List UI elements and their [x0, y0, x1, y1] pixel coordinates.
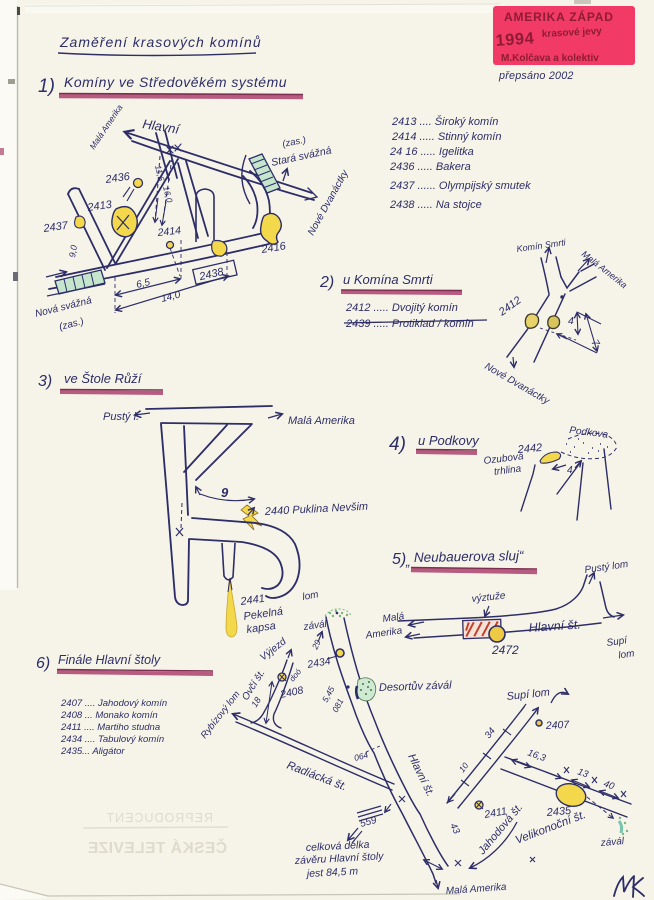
- svg-text:Hlavní št.: Hlavní št.: [528, 617, 581, 635]
- svg-text:2413: 2413: [86, 199, 114, 215]
- svg-text:Neubauerova sluj“: Neubauerova sluj“: [414, 548, 525, 565]
- svg-text:M.Kolčava a kolektiv: M.Kolčava a kolektiv: [501, 53, 599, 64]
- svg-text:4: 4: [568, 315, 574, 327]
- svg-text:Pustý lom: Pustý lom: [584, 559, 629, 576]
- svg-text:Malá Amerika: Malá Amerika: [580, 249, 629, 291]
- svg-text:43: 43: [447, 821, 462, 836]
- svg-text:2407 .... Jahodový komín: 2407 .... Jahodový komín: [60, 698, 167, 709]
- svg-text:jest 84,5 m: jest 84,5 m: [305, 865, 359, 880]
- svg-text:Stará svážná: Stará svážná: [270, 144, 333, 169]
- svg-text:2411 .... Martiho studna: 2411 .... Martiho studna: [60, 722, 160, 733]
- svg-text:2437: 2437: [42, 220, 70, 236]
- svg-text:13: 13: [576, 766, 590, 780]
- svg-text:REPRODUCENT: REPRODUCENT: [105, 811, 213, 825]
- svg-text:Nové Dvanáctky: Nové Dvanáctky: [306, 168, 351, 238]
- svg-text:Malá: Malá: [382, 611, 405, 625]
- svg-text:Supí lom: Supí lom: [506, 687, 550, 703]
- svg-text:2436: 2436: [104, 171, 132, 187]
- svg-text:2407: 2407: [545, 719, 571, 732]
- svg-text:Malá Amerika: Malá Amerika: [288, 415, 355, 427]
- svg-text:u Podkovy: u Podkovy: [418, 433, 480, 448]
- svg-text:Nová svážná: Nová svážná: [34, 295, 93, 320]
- svg-text:2414 ..... Stinný komín: 2414 ..... Stinný komín: [391, 131, 501, 143]
- svg-text:Radiácká št.: Radiácká št.: [285, 760, 348, 794]
- svg-text:6): 6): [36, 655, 50, 672]
- svg-text:Desortův závál: Desortův závál: [379, 679, 453, 694]
- svg-text:16,3: 16,3: [526, 747, 548, 764]
- svg-text:9,0: 9,0: [67, 244, 79, 258]
- svg-text:Hlavní: Hlavní: [142, 116, 182, 137]
- svg-text:559: 559: [359, 815, 378, 830]
- svg-text:2437 ...... Olympijský smutek: 2437 ...... Olympijský smutek: [389, 180, 531, 192]
- svg-text:2416: 2416: [260, 240, 288, 256]
- svg-text:Hlavní št.: Hlavní št.: [405, 752, 436, 798]
- svg-text:Supí: Supí: [606, 635, 629, 649]
- svg-text:16,0: 16,0: [161, 185, 175, 204]
- svg-text:2434 .... Tabulový komín: 2434 .... Tabulový komín: [60, 734, 164, 745]
- svg-text:4): 4): [389, 434, 406, 455]
- svg-text:2412 ..... Dvojitý komín: 2412 ..... Dvojitý komín: [345, 302, 458, 314]
- svg-text:Malá Amerika: Malá Amerika: [445, 882, 507, 897]
- svg-text:AMERIKA ZÁPAD: AMERIKA ZÁPAD: [504, 9, 614, 24]
- svg-text:Komín Smrti: Komín Smrti: [516, 237, 567, 254]
- svg-text:2439 ..... Protiklad / komín: 2439 ..... Protiklad / komín: [345, 318, 474, 330]
- svg-text:6,5: 6,5: [135, 277, 151, 291]
- svg-text:„: „: [405, 554, 410, 569]
- svg-text:2434: 2434: [305, 655, 331, 671]
- svg-text:29: 29: [309, 638, 323, 652]
- svg-text:2435... Aligátor: 2435... Aligátor: [60, 746, 125, 757]
- svg-text:34: 34: [483, 726, 498, 741]
- svg-text:14,0: 14,0: [160, 289, 182, 304]
- svg-text:Nové Dvanáctky: Nové Dvanáctky: [483, 361, 552, 407]
- svg-text:081: 081: [330, 696, 346, 713]
- svg-text:Výjezd: Výjezd: [258, 636, 289, 663]
- svg-text:ve Štole Růží: ve Štole Růží: [64, 371, 143, 386]
- svg-text:závál: závál: [599, 836, 625, 849]
- svg-text:2438 ..... Na stojce: 2438 ..... Na stojce: [389, 199, 482, 211]
- svg-text:2441: 2441: [239, 593, 266, 608]
- svg-text:1994: 1994: [495, 29, 535, 50]
- svg-text:lom: lom: [618, 648, 635, 661]
- svg-text:Malá Amerika: Malá Amerika: [87, 102, 124, 151]
- svg-text:přepsáno 2002: přepsáno 2002: [498, 70, 574, 82]
- svg-text:24 16 ..... Igelitka: 24 16 ..... Igelitka: [389, 146, 474, 158]
- svg-text:2436 ..... Bakera: 2436 ..... Bakera: [389, 161, 471, 173]
- svg-text:Amerika: Amerika: [364, 625, 403, 641]
- svg-text:výztuže: výztuže: [471, 590, 506, 605]
- svg-text:ČESKÁ TELEVIZE: ČESKÁ TELEVIZE: [87, 839, 227, 857]
- svg-text:2408 ... Monako komín: 2408 ... Monako komín: [60, 710, 158, 721]
- svg-text:(zas.): (zas.): [281, 135, 306, 150]
- svg-text:2408: 2408: [278, 684, 304, 701]
- svg-text:trhlina: trhlina: [493, 464, 522, 478]
- svg-text:7: 7: [588, 338, 602, 350]
- svg-text:40: 40: [602, 778, 616, 792]
- svg-text:5): 5): [392, 551, 406, 568]
- svg-text:Pustý l.: Pustý l.: [103, 411, 139, 423]
- svg-text:2413 .... Široký komín: 2413 .... Široký komín: [391, 115, 498, 128]
- svg-text:závál: závál: [302, 619, 328, 633]
- svg-text:2414: 2414: [156, 225, 182, 239]
- svg-text:10: 10: [457, 760, 471, 774]
- svg-text:Pekelná: Pekelná: [243, 606, 284, 623]
- svg-text:9: 9: [221, 485, 229, 500]
- svg-text:2440 Puklina Nevšim: 2440 Puklina Nevšim: [264, 501, 369, 518]
- svg-text:1): 1): [38, 76, 55, 97]
- svg-text:2): 2): [319, 274, 334, 291]
- svg-text:Finále Hlavní štoly: Finále Hlavní štoly: [58, 653, 161, 667]
- svg-text:2472: 2472: [491, 643, 519, 657]
- svg-text:(zas.): (zas.): [58, 316, 85, 333]
- svg-text:kapsa: kapsa: [246, 620, 277, 636]
- svg-text:lom: lom: [302, 589, 320, 603]
- svg-text:3): 3): [38, 373, 52, 390]
- svg-text:Zaměření krasových komínů: Zaměření krasových komínů: [59, 34, 262, 50]
- svg-text:Komíny ve Středověkém systému: Komíny ve Středověkém systému: [64, 74, 287, 90]
- svg-text:2412: 2412: [496, 294, 524, 319]
- svg-text:u Komína Smrti: u Komína Smrti: [343, 272, 434, 287]
